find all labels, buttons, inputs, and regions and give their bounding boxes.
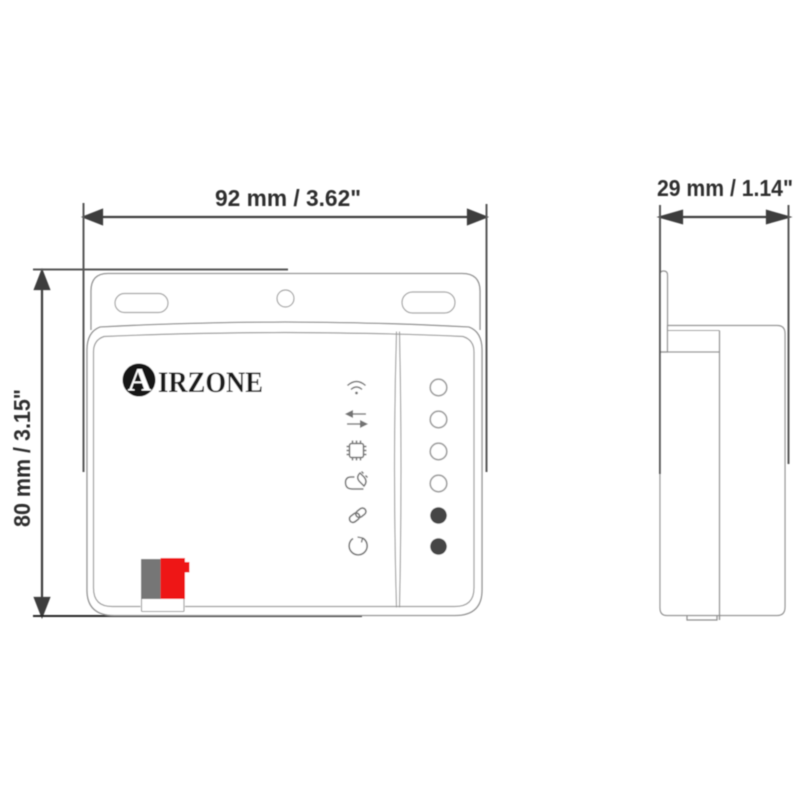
svg-text:A: A (128, 363, 152, 399)
svg-text:29 mm / 1.14": 29 mm / 1.14" (657, 175, 793, 201)
svg-text:80 mm / 3.15": 80 mm / 3.15" (9, 389, 35, 527)
svg-text:92 mm / 3.62": 92 mm / 3.62" (215, 185, 361, 211)
svg-text:IRZONE: IRZONE (158, 366, 263, 399)
